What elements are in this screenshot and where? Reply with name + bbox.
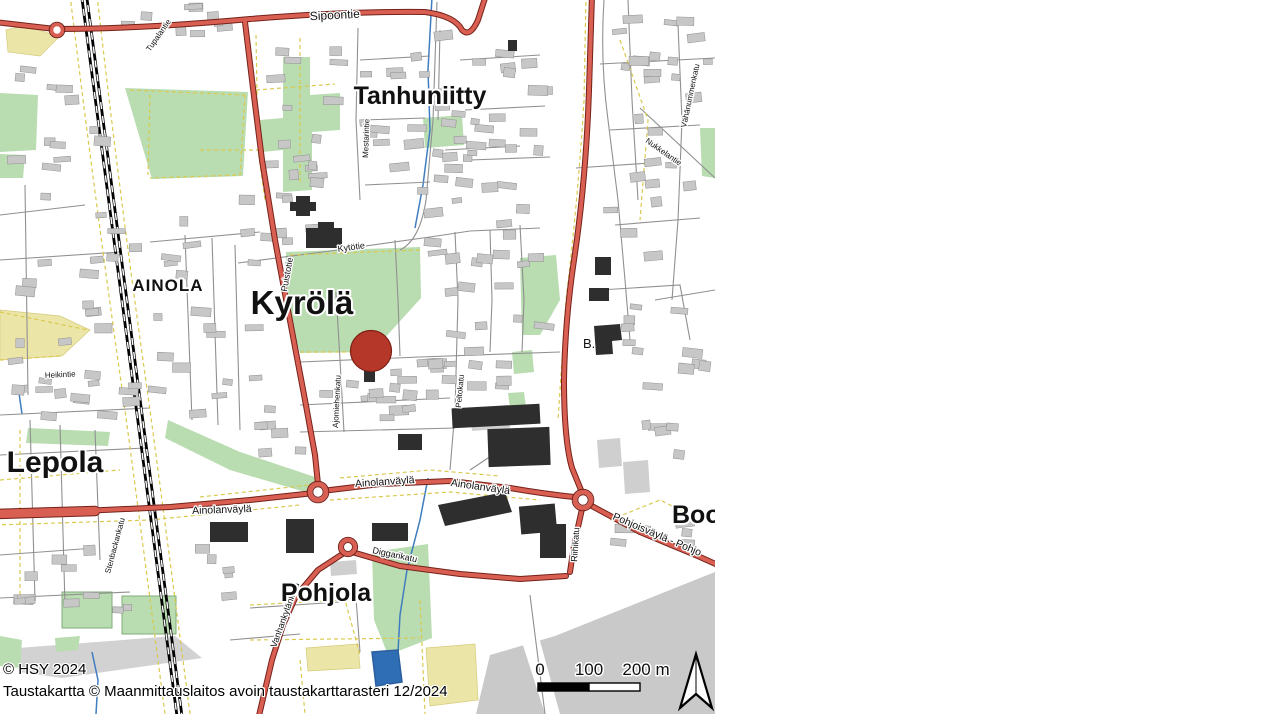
building	[404, 138, 424, 149]
building	[644, 157, 661, 166]
scale-tick-200: 200 m	[622, 660, 669, 679]
building	[612, 28, 627, 35]
building	[41, 411, 57, 420]
building	[452, 110, 466, 117]
building	[61, 565, 76, 572]
district-label-lepola: Lepola	[7, 446, 104, 479]
building	[25, 572, 38, 581]
label-b: B.	[583, 336, 595, 351]
building	[623, 339, 636, 345]
building	[426, 390, 438, 400]
building	[54, 388, 66, 398]
building	[683, 181, 696, 191]
building	[90, 126, 99, 133]
building	[604, 207, 618, 213]
building	[687, 32, 705, 42]
building	[107, 253, 119, 261]
building	[184, 3, 202, 9]
building	[128, 383, 141, 389]
district-label-ainola: AINOLA	[132, 276, 203, 295]
building	[97, 411, 117, 420]
building	[389, 383, 400, 392]
building	[50, 141, 66, 149]
building	[222, 379, 232, 386]
building	[475, 322, 487, 330]
building	[629, 56, 649, 65]
building	[95, 324, 112, 333]
building	[148, 386, 166, 394]
building	[85, 309, 99, 316]
building	[493, 250, 510, 259]
road-label: Ainolanväylä	[450, 477, 511, 497]
building	[204, 323, 216, 332]
building	[516, 204, 529, 214]
building	[283, 105, 292, 110]
district-label-boo: Boog	[672, 501, 715, 529]
map[interactable]: Sipoontie Puistotie Ainolanväylä Ainolan…	[0, 0, 715, 714]
building	[482, 182, 498, 192]
building	[398, 376, 417, 383]
building	[630, 304, 642, 310]
building	[417, 187, 428, 194]
road-label: Sipoontie	[309, 7, 360, 24]
building	[255, 422, 268, 430]
building	[466, 141, 486, 150]
building	[12, 385, 25, 396]
building	[123, 604, 132, 611]
building	[207, 554, 216, 563]
building	[473, 59, 486, 66]
building	[664, 19, 678, 26]
building	[648, 128, 663, 136]
building	[468, 360, 482, 370]
building	[391, 369, 402, 376]
road-label: Ajomiehenkatu	[331, 375, 343, 428]
building	[83, 301, 94, 309]
building	[389, 162, 409, 172]
building	[330, 47, 342, 56]
building	[64, 599, 80, 608]
building	[15, 286, 35, 297]
building	[682, 528, 693, 537]
building	[644, 76, 660, 83]
building	[408, 125, 427, 132]
building	[25, 597, 35, 605]
building	[428, 249, 447, 256]
building	[36, 386, 53, 392]
building	[521, 58, 537, 68]
building	[41, 193, 51, 200]
building	[282, 195, 293, 203]
building	[38, 259, 52, 266]
building	[58, 337, 72, 345]
building	[189, 409, 206, 418]
building	[503, 230, 516, 239]
building	[284, 57, 301, 64]
building	[180, 216, 188, 226]
building	[245, 324, 263, 331]
page: Sipoontie Puistotie Ainolanväylä Ainolan…	[0, 0, 1280, 720]
building	[221, 592, 236, 601]
building	[623, 15, 643, 24]
building	[108, 228, 126, 233]
building	[264, 405, 275, 413]
building	[129, 244, 142, 252]
building	[83, 545, 95, 556]
building	[644, 251, 663, 262]
building	[190, 30, 204, 36]
building	[677, 17, 694, 26]
building	[649, 52, 660, 61]
building	[113, 607, 124, 614]
road-label: Stenbackankatu	[103, 517, 127, 575]
building	[282, 237, 293, 244]
map-canvas[interactable]: Sipoontie Puistotie Ainolanväylä Ainolan…	[0, 0, 715, 714]
building	[468, 150, 477, 156]
building	[157, 352, 174, 361]
building	[271, 428, 288, 438]
building	[489, 139, 506, 147]
building	[432, 149, 443, 158]
building	[651, 196, 663, 207]
building	[442, 152, 457, 162]
building	[195, 544, 209, 553]
building	[15, 73, 25, 82]
building	[96, 212, 107, 218]
scale-tick-0: 0	[535, 660, 544, 679]
building	[671, 74, 680, 81]
building	[373, 139, 389, 146]
building	[369, 388, 383, 398]
location-marker[interactable]	[351, 331, 392, 372]
building	[84, 370, 100, 380]
building	[699, 361, 711, 372]
building	[310, 177, 324, 188]
building	[52, 555, 67, 564]
building	[634, 114, 643, 124]
district-label-kyrola: Kyrölä	[251, 284, 354, 321]
building	[65, 95, 80, 105]
attribution-line2: Taustakartta © Maanmittauslaitos avoin t…	[3, 684, 448, 701]
building	[360, 71, 371, 77]
building	[289, 169, 299, 180]
building	[239, 195, 255, 205]
building	[428, 359, 443, 370]
building	[380, 415, 394, 421]
building	[644, 69, 661, 76]
building	[528, 253, 544, 261]
building	[513, 315, 522, 323]
building	[402, 404, 416, 412]
building	[445, 164, 463, 173]
building	[642, 420, 651, 430]
road-label: Tupalantie	[144, 17, 173, 53]
building	[666, 423, 678, 431]
building	[643, 382, 663, 390]
building	[123, 397, 140, 407]
building	[240, 228, 255, 237]
building	[172, 363, 190, 372]
building	[682, 347, 703, 358]
building	[503, 67, 515, 78]
building	[671, 307, 688, 314]
building	[391, 72, 406, 79]
building	[248, 260, 261, 266]
building	[434, 30, 453, 41]
building	[441, 119, 456, 128]
building	[320, 390, 333, 397]
building	[455, 177, 473, 187]
building	[424, 237, 442, 247]
building	[445, 253, 460, 265]
attribution-line1: © HSY 2024	[3, 662, 86, 679]
building	[630, 171, 646, 182]
building	[645, 179, 660, 188]
building	[477, 254, 493, 264]
building	[497, 181, 517, 190]
building	[249, 375, 262, 381]
building	[446, 330, 466, 339]
building	[703, 59, 712, 65]
building	[191, 307, 212, 317]
building	[632, 347, 643, 355]
road-label: Heikintie	[45, 369, 77, 380]
building	[475, 124, 494, 133]
building	[266, 74, 285, 83]
building	[161, 254, 181, 262]
building	[88, 380, 99, 386]
road-label: Ainolanväylä	[192, 503, 252, 517]
building	[458, 282, 475, 293]
building	[505, 145, 516, 153]
building	[678, 363, 694, 374]
district-label-pohjola: Pohjola	[281, 579, 372, 607]
building	[212, 392, 227, 399]
building	[90, 256, 103, 264]
building	[47, 84, 57, 90]
building	[323, 97, 343, 105]
building	[346, 380, 359, 388]
building	[610, 538, 626, 546]
building	[434, 175, 448, 183]
building	[419, 71, 429, 77]
building	[330, 59, 348, 66]
building	[79, 269, 98, 279]
building	[497, 376, 512, 386]
building	[223, 566, 235, 573]
district-label-tanhuniitty: Tanhuniitty	[354, 82, 487, 110]
building	[673, 449, 685, 459]
building	[154, 313, 162, 320]
building	[442, 375, 457, 384]
building	[496, 361, 512, 369]
building	[403, 389, 418, 400]
building	[20, 66, 36, 74]
building	[489, 114, 505, 122]
building	[621, 323, 634, 332]
building	[496, 219, 512, 228]
gray-areas	[18, 405, 715, 714]
building	[517, 260, 530, 267]
building	[411, 52, 422, 61]
building	[454, 136, 466, 144]
building	[295, 447, 306, 455]
building	[278, 140, 290, 149]
building	[520, 128, 537, 136]
building	[275, 48, 289, 56]
building	[424, 207, 444, 218]
building	[83, 592, 99, 599]
building	[141, 12, 152, 21]
building	[620, 228, 637, 237]
building	[56, 85, 73, 93]
building	[42, 163, 61, 171]
road-label: Mestarintie	[361, 118, 371, 158]
building	[534, 145, 544, 156]
road-label: Peltokatu	[454, 374, 466, 408]
building	[467, 382, 486, 391]
building	[312, 134, 322, 143]
scale-tick-100: 100	[575, 660, 603, 679]
building	[445, 287, 458, 296]
building	[16, 339, 25, 348]
building	[258, 448, 272, 457]
building	[308, 161, 317, 171]
building	[452, 197, 462, 203]
building	[94, 136, 111, 147]
building	[495, 283, 514, 289]
building	[444, 361, 456, 367]
building	[464, 347, 484, 356]
building	[7, 155, 26, 164]
road-label: Riihikatu	[569, 527, 581, 562]
building	[54, 156, 71, 162]
building	[528, 85, 548, 96]
building	[668, 57, 678, 66]
building	[70, 393, 90, 403]
